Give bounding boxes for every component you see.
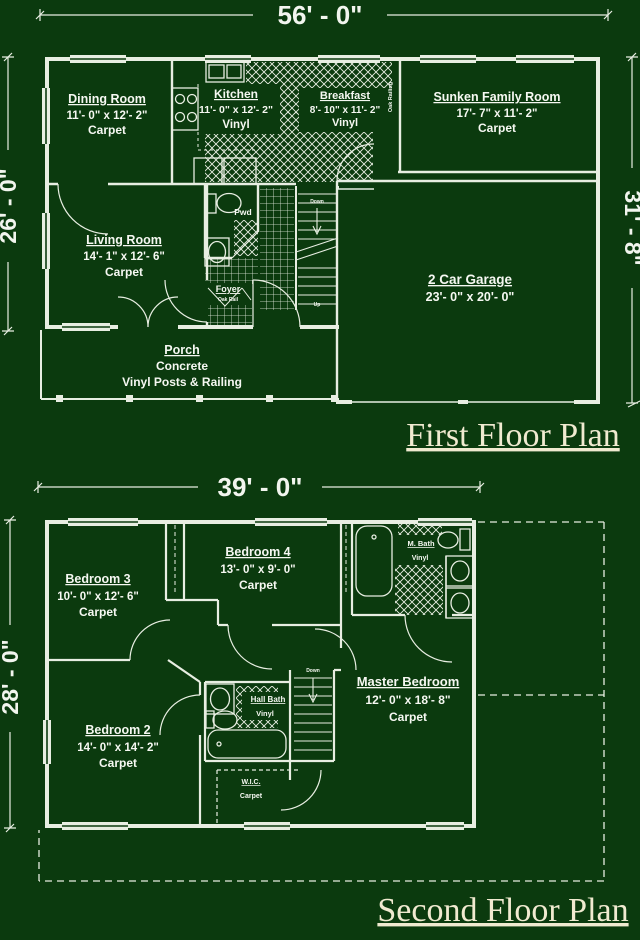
bed4-right-wall <box>334 520 341 670</box>
living-room-size: 14'- 1" x 12'- 6" <box>83 251 165 263</box>
family-room-size: 17'- 7" x 11'- 2" <box>457 108 538 120</box>
wic-name: W.I.C. <box>241 779 260 786</box>
bedroom4-floor: Carpet <box>239 578 277 592</box>
staircase <box>294 678 332 750</box>
bedroom3-floor: Carpet <box>79 605 117 619</box>
mbath-tub-icon <box>356 526 392 596</box>
breakfast-name: Breakfast <box>320 90 370 102</box>
wic-floor: Carpet <box>240 793 263 800</box>
dim-top: 56' - 0" <box>278 0 363 30</box>
master-floor: Carpet <box>389 710 427 724</box>
kitchen-floor: Vinyl <box>222 119 249 131</box>
living-door <box>165 280 207 322</box>
mbath-floor: Vinyl <box>412 555 429 562</box>
second-floor-title: Second Floor Plan <box>377 892 628 929</box>
bed4-bottom-wall <box>184 600 341 625</box>
bed4-door <box>228 625 272 669</box>
living-room-floor: Carpet <box>105 265 143 279</box>
toilet-icon <box>207 194 216 213</box>
family-room-floor: Carpet <box>478 121 516 135</box>
dining-room-name: Dining Room <box>68 92 146 106</box>
hallbath-name: Hall Bath <box>251 695 286 704</box>
stair-down-label: Down <box>306 668 320 674</box>
oak-railing-label: Oak Railing <box>388 82 394 112</box>
bed2-door <box>160 695 200 735</box>
family-room-name: Sunken Family Room <box>433 90 560 104</box>
living-room-name: Living Room <box>86 233 162 247</box>
bedroom4-name: Bedroom 4 <box>225 545 290 559</box>
master-size: 12'- 0" x 18'- 8" <box>365 693 450 707</box>
bed3-door <box>130 620 170 660</box>
wic-door <box>281 770 321 810</box>
floor-plan-sheet: 56' - 0" 26' - 0" 31' - 8" Dining Room 1… <box>0 0 640 940</box>
french-door-leaf <box>118 297 148 327</box>
stair-up-label: Up <box>314 302 321 308</box>
hall-grid <box>260 188 294 310</box>
bedroom2-size: 14'- 0" x 14'- 2" <box>77 742 159 754</box>
porch-note: Vinyl Posts & Railing <box>122 375 242 389</box>
dining-room-size: 11'- 0" x 12'- 2" <box>67 110 148 122</box>
dim-left: 28' - 0" <box>0 639 23 714</box>
mbath-name: M. Bath <box>407 539 435 548</box>
stair-down-label: Down <box>310 199 324 205</box>
dim-right: 31' - 8" <box>620 190 640 265</box>
french-door-leaf <box>148 297 178 327</box>
stair-break-line <box>296 238 338 260</box>
master-name: Master Bedroom <box>357 674 460 689</box>
second-floor-plan: 39' - 0" 28' - 0" Bedroom 3 10'- 0" x 12… <box>0 470 640 940</box>
bedroom2-name: Bedroom 2 <box>85 723 150 737</box>
dim-left: 26' - 0" <box>0 168 21 243</box>
dining-room-floor: Carpet <box>88 123 126 137</box>
shower-hatch <box>395 565 443 615</box>
bed3-bottom-wall <box>45 660 200 682</box>
garage-name: 2 Car Garage <box>428 272 513 287</box>
bedroom3-name: Bedroom 3 <box>65 572 130 586</box>
mbath-door <box>405 615 452 662</box>
breakfast-floor: Vinyl <box>332 117 358 129</box>
porch-name: Porch <box>164 343 199 357</box>
kitchen-size: 11'- 0" x 12'- 2" <box>199 104 273 116</box>
garage-size: 23'- 0" x 20'- 0" <box>426 290 515 304</box>
master-door <box>315 629 356 670</box>
powder-room-name: Pwd <box>234 207 251 217</box>
porch-floor: Concrete <box>156 359 208 373</box>
dining-door <box>58 184 108 234</box>
hallbath-floor: Vinyl <box>256 709 274 718</box>
bedroom4-size: 13'- 0" x 9'- 0" <box>220 564 295 576</box>
hallbath-tub-icon <box>208 730 286 758</box>
bedroom2-floor: Carpet <box>99 756 137 770</box>
down-arrow <box>309 678 317 702</box>
first-floor-title: First Floor Plan <box>406 417 619 454</box>
foyer-name: Foyer <box>216 284 241 294</box>
dim-top: 39' - 0" <box>218 472 303 502</box>
breakfast-size: 8'- 10" x 11'- 2" <box>310 105 381 116</box>
kitchen-name: Kitchen <box>214 87 258 101</box>
foyer-note: Oak Rail <box>218 297 239 303</box>
powder-hatch <box>234 220 258 256</box>
bedroom3-size: 10'- 0" x 12'- 6" <box>57 591 139 603</box>
first-floor-plan: 56' - 0" 26' - 0" 31' - 8" Dining Room 1… <box>0 0 640 470</box>
